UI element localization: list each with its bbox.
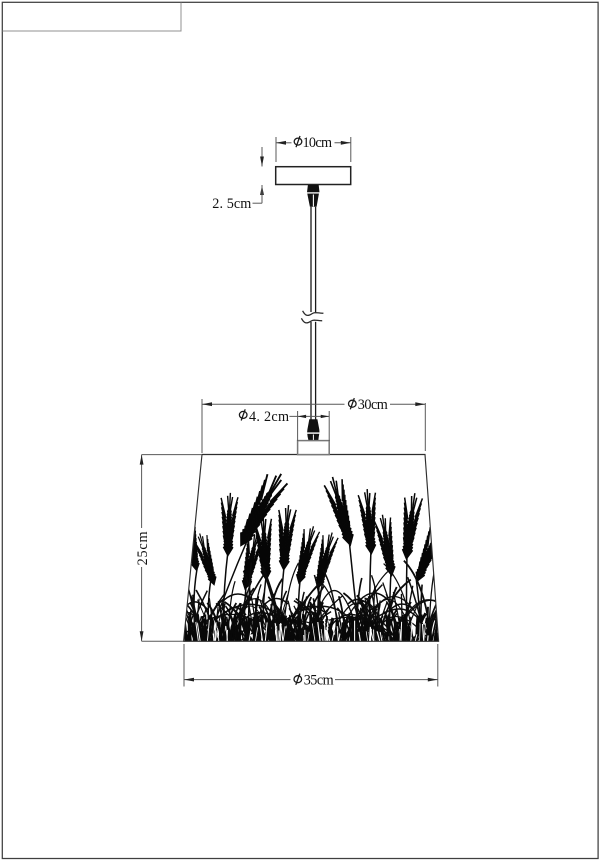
- svg-text:2. 5cm: 2. 5cm: [212, 196, 251, 212]
- svg-text:4. 2cm: 4. 2cm: [249, 409, 289, 425]
- svg-text:30cm: 30cm: [358, 397, 388, 413]
- svg-text:10cm: 10cm: [303, 135, 333, 151]
- svg-text:35cm: 35cm: [304, 672, 334, 688]
- svg-text:25cm: 25cm: [135, 531, 151, 565]
